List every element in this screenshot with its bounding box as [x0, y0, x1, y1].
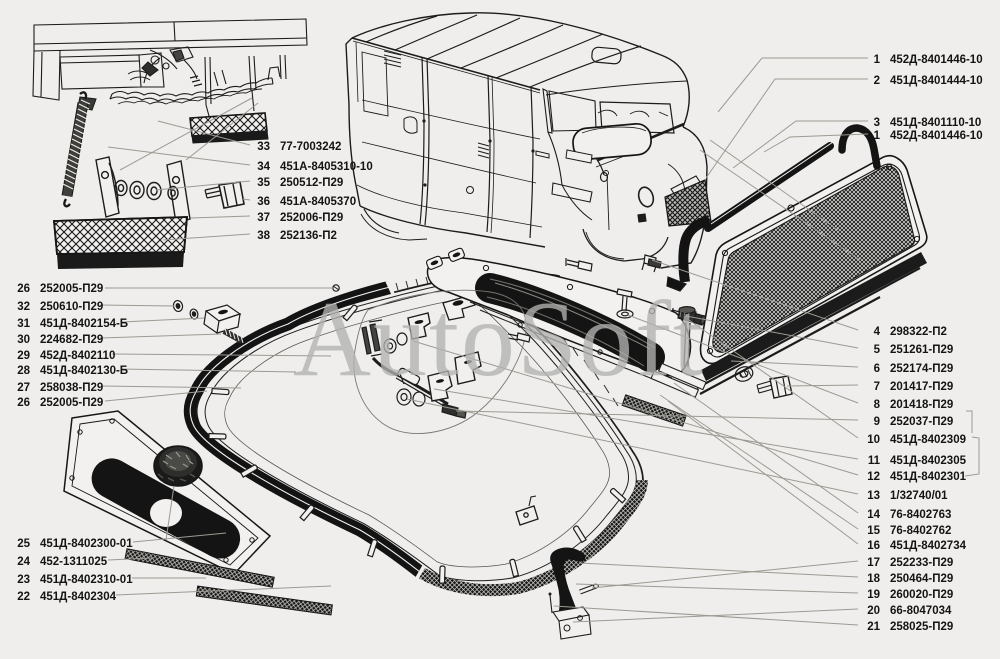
svg-text:9: 9	[874, 416, 880, 428]
svg-text:258025-П29: 258025-П29	[890, 621, 953, 633]
svg-text:35: 35	[257, 177, 270, 189]
svg-text:452Д-8401446-10: 452Д-8401446-10	[890, 54, 983, 66]
svg-text:21: 21	[867, 621, 880, 633]
svg-text:22: 22	[17, 591, 30, 603]
svg-text:38: 38	[257, 230, 270, 242]
svg-text:18: 18	[867, 573, 880, 585]
svg-text:1: 1	[874, 130, 881, 142]
svg-text:4: 4	[874, 326, 881, 338]
svg-text:36: 36	[257, 196, 270, 208]
svg-text:24: 24	[17, 556, 30, 568]
svg-text:10: 10	[867, 434, 880, 446]
svg-text:258038-П29: 258038-П29	[40, 382, 103, 394]
svg-text:8: 8	[874, 399, 881, 411]
svg-text:25: 25	[17, 538, 30, 550]
svg-text:AutoSoft: AutoSoft	[293, 280, 705, 399]
svg-text:13: 13	[867, 490, 880, 502]
svg-text:37: 37	[257, 212, 270, 224]
svg-text:451Д-8402301: 451Д-8402301	[890, 471, 967, 483]
svg-text:32: 32	[17, 301, 30, 313]
svg-text:201417-П29: 201417-П29	[890, 381, 953, 393]
svg-text:452Д-8401446-10: 452Д-8401446-10	[890, 130, 983, 142]
svg-text:252174-П29: 252174-П29	[890, 363, 953, 375]
svg-text:77-7003242: 77-7003242	[280, 141, 341, 153]
svg-text:29: 29	[17, 350, 30, 362]
svg-text:76-8402763: 76-8402763	[890, 509, 951, 521]
svg-text:66-8047034: 66-8047034	[890, 605, 952, 617]
svg-text:250610-П29: 250610-П29	[40, 301, 103, 313]
svg-text:451А-8405310-10: 451А-8405310-10	[280, 161, 373, 173]
svg-text:23: 23	[17, 574, 30, 586]
svg-text:11: 11	[868, 455, 881, 467]
svg-text:224682-П29: 224682-П29	[40, 334, 103, 346]
svg-text:251261-П29: 251261-П29	[890, 344, 953, 356]
svg-text:20: 20	[867, 605, 880, 617]
svg-text:451Д-8402300-01: 451Д-8402300-01	[40, 538, 133, 550]
svg-text:252233-П29: 252233-П29	[890, 557, 953, 569]
svg-text:201418-П29: 201418-П29	[890, 399, 953, 411]
svg-text:5: 5	[874, 344, 881, 356]
svg-text:15: 15	[867, 525, 880, 537]
svg-text:252006-П29: 252006-П29	[280, 212, 343, 224]
svg-text:12: 12	[867, 471, 880, 483]
svg-text:451Д-8401444-10: 451Д-8401444-10	[890, 75, 983, 87]
svg-text:451Д-8402734: 451Д-8402734	[890, 540, 967, 552]
svg-text:17: 17	[867, 557, 880, 569]
svg-text:2: 2	[874, 75, 880, 87]
svg-text:452-1311025: 452-1311025	[40, 556, 108, 568]
svg-text:7: 7	[874, 381, 880, 393]
svg-text:16: 16	[867, 540, 880, 552]
svg-text:1/32740/01: 1/32740/01	[890, 490, 948, 502]
svg-text:451А-8405370: 451А-8405370	[280, 196, 356, 208]
svg-text:252005-П29: 252005-П29	[40, 397, 103, 409]
svg-text:452Д-8402110: 452Д-8402110	[40, 350, 115, 362]
svg-text:451Д-8401110-10: 451Д-8401110-10	[890, 117, 981, 129]
svg-text:1: 1	[874, 54, 881, 66]
svg-text:26: 26	[17, 283, 30, 295]
svg-text:26: 26	[17, 397, 30, 409]
svg-text:19: 19	[867, 589, 880, 601]
svg-text:451Д-8402304: 451Д-8402304	[40, 591, 117, 603]
svg-text:3: 3	[874, 117, 880, 129]
svg-text:451Д-8402305: 451Д-8402305	[890, 455, 967, 467]
svg-text:298322-П2: 298322-П2	[890, 326, 947, 338]
svg-text:34: 34	[257, 161, 270, 173]
svg-text:451Д-8402154-Б: 451Д-8402154-Б	[40, 318, 128, 330]
svg-text:451Д-8402310-01: 451Д-8402310-01	[40, 574, 133, 586]
svg-text:31: 31	[17, 318, 30, 330]
svg-text:76-8402762: 76-8402762	[890, 525, 951, 537]
svg-text:27: 27	[17, 382, 30, 394]
svg-text:6: 6	[874, 363, 880, 375]
svg-text:252005-П29: 252005-П29	[40, 283, 103, 295]
svg-text:451Д-8402309: 451Д-8402309	[890, 434, 966, 446]
svg-text:451Д-8402130-Б: 451Д-8402130-Б	[40, 365, 128, 377]
svg-text:250512-П29: 250512-П29	[280, 177, 343, 189]
svg-text:30: 30	[17, 334, 30, 346]
svg-text:252037-П29: 252037-П29	[890, 416, 953, 428]
svg-text:33: 33	[257, 141, 270, 153]
svg-text:14: 14	[867, 509, 880, 521]
svg-text:250464-П29: 250464-П29	[890, 573, 953, 585]
svg-text:28: 28	[17, 365, 30, 377]
svg-text:252136-П2: 252136-П2	[280, 230, 337, 242]
svg-text:260020-П29: 260020-П29	[890, 589, 953, 601]
